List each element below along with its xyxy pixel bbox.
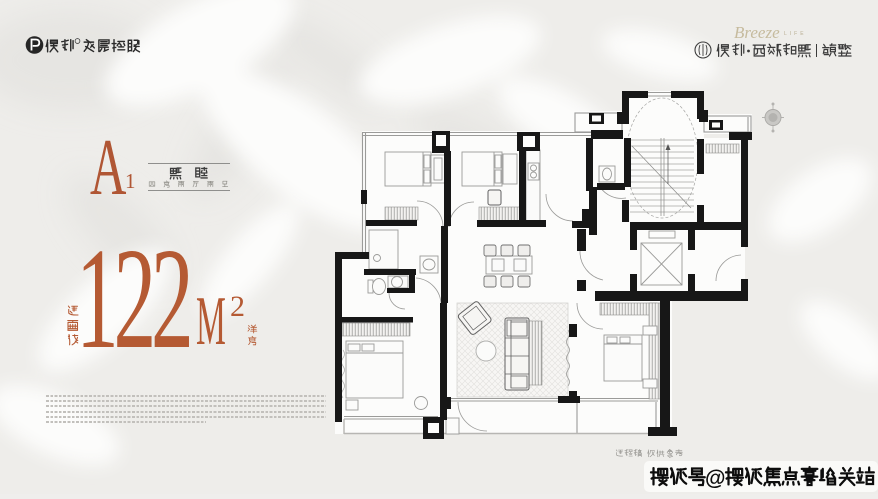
svg-text:@: @: [705, 467, 725, 490]
